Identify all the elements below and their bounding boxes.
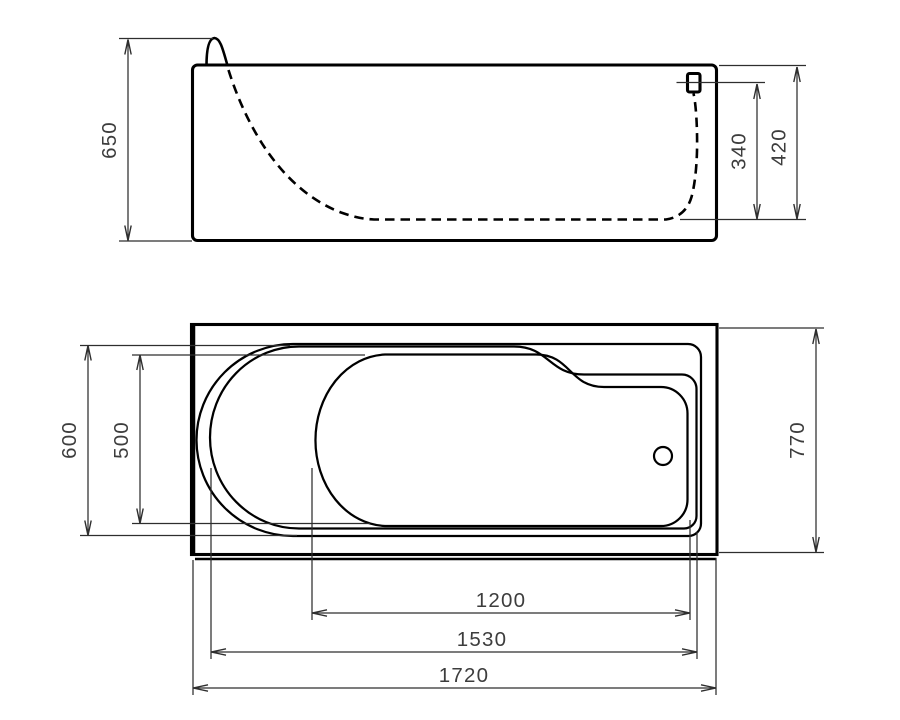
- dim-500-label: 500: [110, 421, 133, 459]
- dim-650-label: 650: [98, 121, 121, 159]
- bathtub-technical-drawing: 650 340 420: [0, 0, 900, 720]
- drain-hole: [654, 447, 672, 465]
- plan-view-dimensions: 600 500 770 1200: [58, 328, 824, 695]
- basin-floor-outline: [315, 355, 687, 527]
- dim-1720-label: 1720: [439, 664, 489, 687]
- headrest-profile: [207, 38, 228, 66]
- dim-1530: 1530: [211, 468, 697, 659]
- dim-1530-label: 1530: [457, 628, 507, 651]
- side-view-tub-outline: [193, 65, 717, 241]
- dim-420-label: 420: [768, 128, 791, 166]
- dim-600-label: 600: [58, 421, 81, 459]
- dim-340-label: 340: [728, 132, 751, 170]
- dim-1200: 1200: [312, 468, 690, 620]
- inner-basin-profile-dashed: [229, 70, 698, 220]
- side-elevation-view: [193, 38, 717, 241]
- dim-770: 770: [719, 328, 824, 553]
- dim-770-label: 770: [786, 421, 809, 459]
- dim-600: 600: [58, 346, 297, 536]
- plan-view-footprint: [192, 325, 718, 555]
- dim-500: 500: [110, 355, 370, 524]
- dim-1720: 1720: [193, 558, 716, 695]
- dim-650: 650: [98, 39, 213, 242]
- dim-1200-label: 1200: [476, 589, 526, 612]
- basin-opening-outline: [210, 347, 697, 529]
- side-view-dimensions: 650 340 420: [98, 39, 806, 242]
- rim-outer-outline: [197, 344, 702, 536]
- drawing-svg: 650 340 420: [0, 0, 900, 720]
